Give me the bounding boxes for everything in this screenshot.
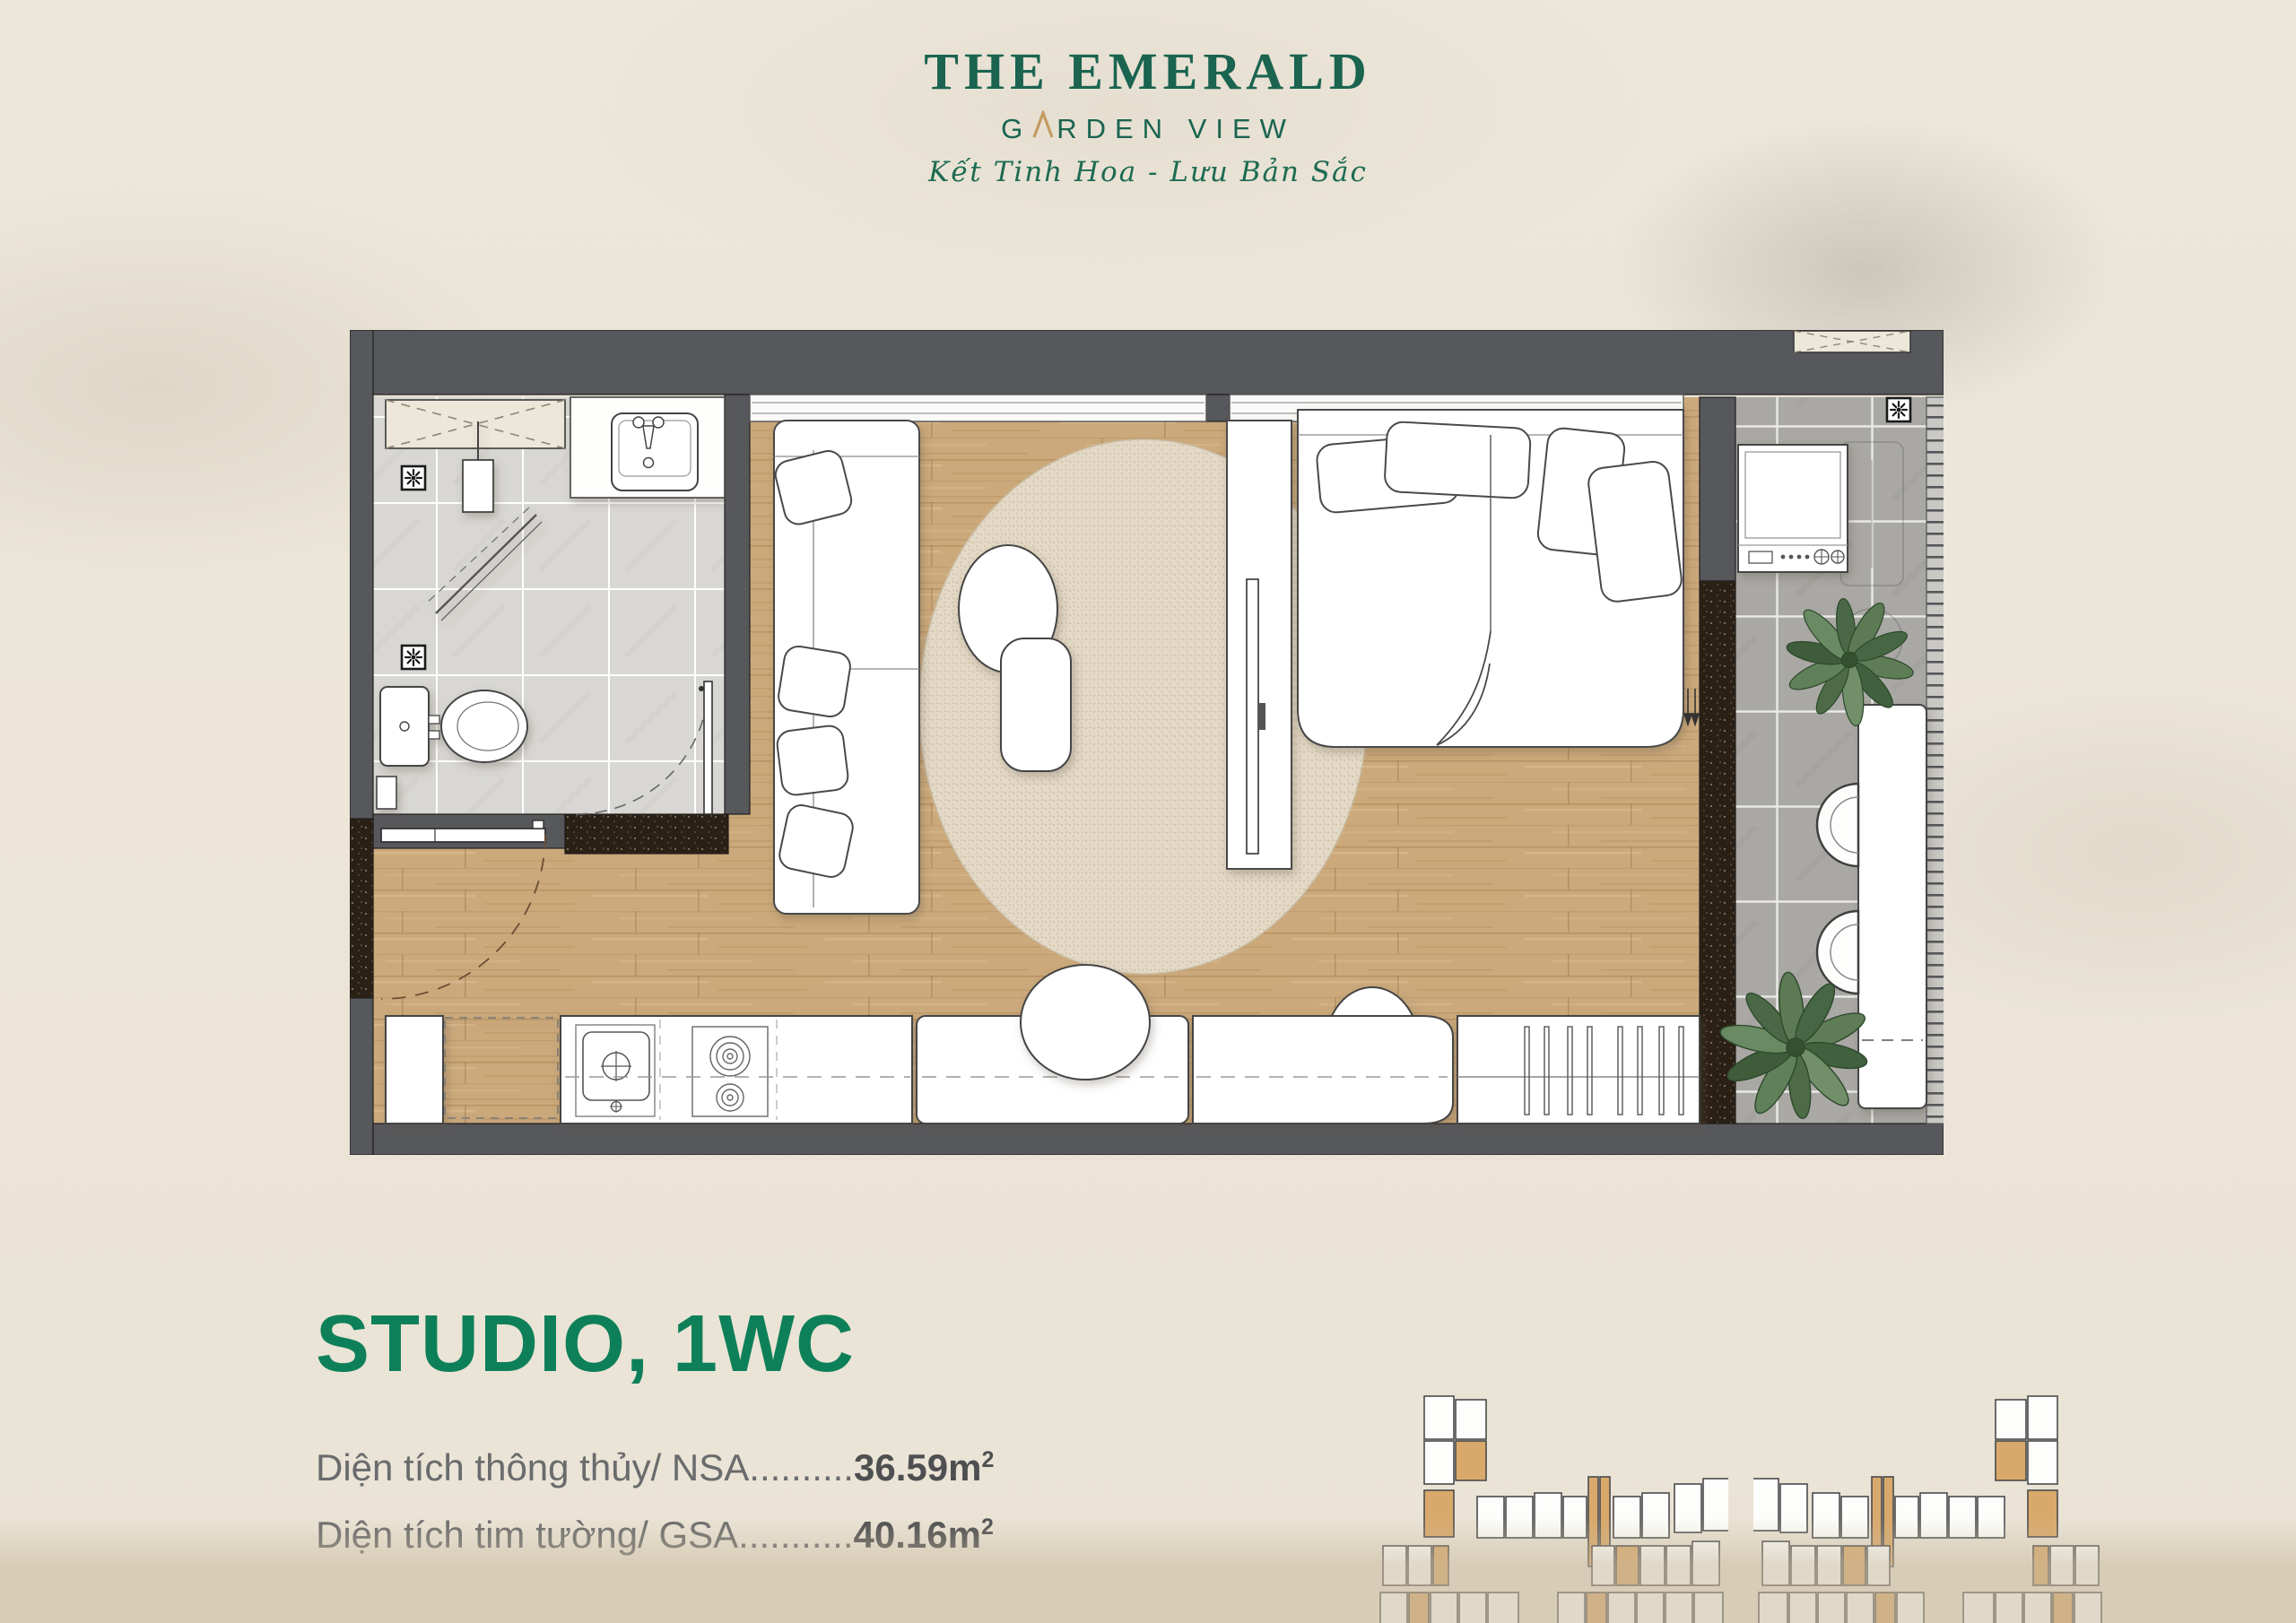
brand-subtitle-left: G xyxy=(1001,113,1031,145)
keyplan-unit xyxy=(1424,1441,1454,1484)
tv-icon xyxy=(1247,579,1258,854)
wall-left xyxy=(350,330,373,1155)
sofa xyxy=(772,421,919,914)
wall-bottom xyxy=(373,1124,1944,1155)
brand-subtitle-right: RDEN VIEW xyxy=(1057,113,1295,145)
brand-subtitle: GRDEN VIEW xyxy=(0,110,2296,145)
area-line-nsa: Diện tích thông thủy/ NSA..........36.59… xyxy=(316,1430,994,1497)
keyplan-unit xyxy=(2028,1396,2057,1439)
column-entry xyxy=(350,819,373,998)
washing-machine xyxy=(1738,445,1848,572)
wall-top xyxy=(350,330,1944,395)
brand-tagline: Kết Tinh Hoa - Lưu Bản Sắc xyxy=(0,156,2296,188)
floor-drain-icon xyxy=(402,466,425,490)
brand-logo: THE EMERALD GRDEN VIEW Kết Tinh Hoa - Lư… xyxy=(0,41,2296,188)
wall-balcony-divider xyxy=(1700,397,1735,581)
keyplan-unit xyxy=(1996,1400,2026,1439)
brochure-page: THE EMERALD GRDEN VIEW Kết Tinh Hoa - Lư… xyxy=(0,0,2296,1623)
keyplan-unit-highlighted xyxy=(1996,1441,2026,1480)
floor-plan xyxy=(350,330,1944,1155)
window-living xyxy=(750,395,1206,421)
double-bed xyxy=(1298,410,1683,747)
round-stool xyxy=(1021,965,1150,1080)
keyplan-unit-highlighted xyxy=(1456,1441,1486,1480)
paper-holder xyxy=(377,777,396,809)
keyplan-unit xyxy=(1456,1400,1486,1439)
tv-console xyxy=(1227,421,1291,869)
floor-drain-icon xyxy=(402,646,425,669)
wall-window-stub xyxy=(1206,395,1230,421)
vanity-sink xyxy=(570,397,725,498)
kitchen-cabinet xyxy=(386,1016,443,1124)
wardrobe-x-panel xyxy=(386,400,565,448)
marble-shade-band xyxy=(0,1517,2296,1623)
balcony-railing xyxy=(1926,397,1944,1124)
wardrobe-x-panel xyxy=(1794,331,1910,352)
brand-title: THE EMERALD xyxy=(0,41,2296,101)
counter-right-run xyxy=(1193,1016,1453,1124)
floor-drain-icon xyxy=(1887,398,1910,421)
threshold-bathroom xyxy=(565,814,728,854)
bar-table xyxy=(1858,705,1926,1108)
wall-bathroom-right xyxy=(725,395,750,814)
unit-title: STUDIO, 1WC xyxy=(316,1298,994,1391)
gold-triangle-a-icon xyxy=(1031,110,1055,146)
keyplan-unit xyxy=(1424,1396,1454,1439)
keyplan-unit xyxy=(2028,1441,2057,1484)
